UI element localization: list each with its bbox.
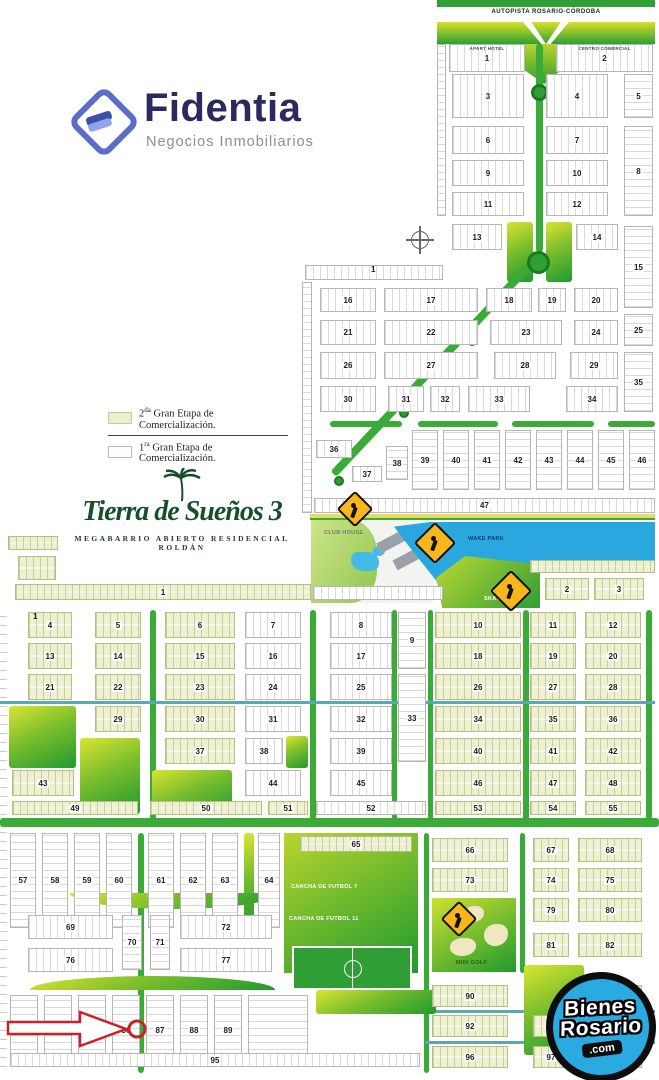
block-number: 15 <box>632 263 645 272</box>
road <box>428 610 433 820</box>
block-52: 52 <box>316 801 426 815</box>
golf-green <box>484 924 508 946</box>
block-24: 24 <box>245 674 301 700</box>
block-number: 14 <box>591 233 604 242</box>
block-number: 53 <box>472 804 485 813</box>
block-number: 10 <box>571 169 584 178</box>
block-34: 34 <box>566 386 618 412</box>
block-67: 67 <box>533 838 569 862</box>
block-number: 16 <box>342 296 355 305</box>
block-number: 26 <box>472 683 485 692</box>
block-35: 35 <box>530 706 576 732</box>
block-number: 35 <box>547 715 560 724</box>
block-number: 42 <box>607 747 620 756</box>
block-number: 59 <box>81 876 94 885</box>
block-35: 35 <box>624 352 653 412</box>
block-15: 15 <box>165 643 235 669</box>
map-label: 1 <box>371 265 376 274</box>
block-number: 39 <box>355 747 368 756</box>
block-22: 22 <box>95 674 141 700</box>
block-4: 4 <box>546 74 608 118</box>
block-number: 6 <box>196 621 204 630</box>
block-69: 69 <box>28 915 113 939</box>
masterplan-map: AUTOPISTA ROSARIO-CÓRDOBA APART HOTEL1CE… <box>0 0 659 1080</box>
block-71: 71 <box>150 915 170 970</box>
block-number: 20 <box>607 652 620 661</box>
block-12: 12 <box>546 192 608 216</box>
block-number: 42 <box>512 456 525 465</box>
block-number: 41 <box>547 747 560 756</box>
block-27: 27 <box>530 674 576 700</box>
park <box>9 706 76 768</box>
block-number: 12 <box>607 621 620 630</box>
block-number: 45 <box>355 779 368 788</box>
roundabout-dot <box>334 476 344 486</box>
block-number: 40 <box>450 456 463 465</box>
block-number: 1 <box>159 588 167 597</box>
block-37: 37 <box>352 466 382 482</box>
road <box>646 610 652 820</box>
block-number: 9 <box>484 169 492 178</box>
block-number: 33 <box>406 714 419 723</box>
block-43: 43 <box>12 770 74 796</box>
block-12: 12 <box>585 612 641 638</box>
block-number: 7 <box>269 621 277 630</box>
block-number: 37 <box>361 470 374 479</box>
road <box>424 833 429 1073</box>
block-number: 95 <box>209 1056 222 1065</box>
flyer-page: Fidentia Negocios Inmobiliarios 2da Gran… <box>0 0 659 1080</box>
sign-figure <box>422 530 448 556</box>
block-number: 18 <box>472 652 485 661</box>
block-25: 25 <box>330 674 392 700</box>
block-number: 96 <box>464 1053 477 1062</box>
map-label: CANCHA DE FUTBOL 11 <box>289 916 359 922</box>
block-number: 60 <box>113 876 126 885</box>
block-number: 66 <box>464 846 477 855</box>
football-pitch <box>292 946 412 990</box>
block-6: 6 <box>452 126 524 154</box>
sign-figure <box>344 498 366 520</box>
roundabout <box>527 251 550 274</box>
block-number: 21 <box>342 328 355 337</box>
block-number: 36 <box>328 445 341 454</box>
block-number: 46 <box>636 456 649 465</box>
block-number: 89 <box>222 1026 235 1035</box>
block-number: 23 <box>520 328 533 337</box>
block-47: 47 <box>530 770 576 796</box>
block-34: 34 <box>435 706 521 732</box>
block-2: 2 <box>545 578 589 600</box>
park <box>30 976 275 990</box>
block-number: 63 <box>219 876 232 885</box>
block-18: 18 <box>486 288 532 312</box>
block-number: 24 <box>590 328 603 337</box>
block-32: 32 <box>430 386 460 412</box>
block-46: 46 <box>629 430 655 490</box>
road <box>512 421 594 427</box>
block-49: 49 <box>12 801 138 815</box>
block-number: 61 <box>155 876 168 885</box>
block-number: 38 <box>391 459 404 468</box>
block-number: 43 <box>37 779 50 788</box>
road <box>392 610 397 820</box>
block-44: 44 <box>567 430 593 490</box>
block-number: 43 <box>543 456 556 465</box>
block-number: 80 <box>604 906 617 915</box>
block-number: 68 <box>604 846 617 855</box>
block-number: 74 <box>545 876 558 885</box>
park <box>316 990 436 1014</box>
block-3: 3 <box>594 578 644 600</box>
block-46: 46 <box>435 770 521 796</box>
block-5: 5 <box>624 74 653 118</box>
block-20: 20 <box>585 643 641 669</box>
block-number: 47 <box>547 779 560 788</box>
block-45: 45 <box>330 770 392 796</box>
block-number: 4 <box>46 621 54 630</box>
road <box>330 421 402 427</box>
block-13: 13 <box>28 643 72 669</box>
block-74: 74 <box>533 868 569 892</box>
block-28: 28 <box>494 352 556 379</box>
block-number: 62 <box>187 876 200 885</box>
block-27: 27 <box>384 352 478 379</box>
block-number: 18 <box>503 296 516 305</box>
block-number: 27 <box>425 361 438 370</box>
lot-strip <box>8 536 58 550</box>
sign-figure <box>498 578 524 604</box>
block-number: 77 <box>220 956 233 965</box>
block-90: 90 <box>432 985 508 1007</box>
block-18: 18 <box>435 643 521 669</box>
block-14: 14 <box>576 224 618 250</box>
block-number: 13 <box>471 233 484 242</box>
block-30: 30 <box>320 386 376 412</box>
block-92: 92 <box>432 1015 508 1037</box>
block-number: 5 <box>634 92 642 101</box>
block-60: 60 <box>106 833 132 928</box>
block-82: 82 <box>578 933 642 957</box>
block-66: 66 <box>432 838 508 862</box>
block-77: 77 <box>180 948 272 972</box>
block-number: 64 <box>263 876 276 885</box>
block-number: 37 <box>194 747 207 756</box>
block-40: 40 <box>435 738 521 764</box>
block-number: 30 <box>342 395 355 404</box>
highway-label: AUTOPISTA ROSARIO-CÓRDOBA <box>437 9 655 21</box>
block-2: CENTRO COMERCIAL2 <box>556 44 653 72</box>
block-43: 43 <box>536 430 562 490</box>
block-number: 3 <box>615 585 623 594</box>
block-7: 7 <box>546 126 608 154</box>
block-41: 41 <box>474 430 500 490</box>
block-1: APART HOTEL1 <box>449 44 525 72</box>
block-number: 92 <box>464 1022 477 1031</box>
block-63: 63 <box>212 833 238 928</box>
block-number: 15 <box>194 652 207 661</box>
block-45: 45 <box>598 430 624 490</box>
block-21: 21 <box>28 674 72 700</box>
block-29: 29 <box>95 706 141 732</box>
block-37: 37 <box>165 738 235 764</box>
golf-green <box>450 938 476 956</box>
block-41: 41 <box>530 738 576 764</box>
block-58: 58 <box>42 833 68 928</box>
block-number: 2 <box>600 54 608 63</box>
lot-strip <box>302 282 312 513</box>
block-16: 16 <box>320 288 376 312</box>
block-number: 2 <box>563 585 571 594</box>
map-label: WAKE PARK <box>468 536 504 542</box>
block-72: 72 <box>180 915 272 939</box>
block-number: 76 <box>64 956 77 965</box>
block-number: 58 <box>49 876 62 885</box>
block-number: 34 <box>472 715 485 724</box>
map-label: CANCHA DE FUTBOL 7 <box>291 884 358 890</box>
block-number: 22 <box>112 683 125 692</box>
block-number: 35 <box>632 378 645 387</box>
map-label: MINI GOLF <box>456 960 487 966</box>
highlight-arrow <box>0 1005 160 1057</box>
block-10: 10 <box>546 160 608 186</box>
block-number: 44 <box>574 456 587 465</box>
block-number: 82 <box>604 941 617 950</box>
block-number: 69 <box>64 923 77 932</box>
block-16: 16 <box>245 643 301 669</box>
block-number: 27 <box>547 683 560 692</box>
block-number: 28 <box>519 361 532 370</box>
block-number: 65 <box>350 840 363 849</box>
block-title: CENTRO COMERCIAL <box>557 46 652 51</box>
block-76: 76 <box>28 948 113 972</box>
block-number: 24 <box>267 683 280 692</box>
block-21: 21 <box>320 320 376 345</box>
block-62: 62 <box>180 833 206 928</box>
block-73: 73 <box>432 868 508 892</box>
block-number: 73 <box>464 876 477 885</box>
block-1: 1 <box>15 584 311 600</box>
block-80: 80 <box>578 898 642 922</box>
block-57: 57 <box>10 833 36 928</box>
block-number: 29 <box>112 715 125 724</box>
block-38: 38 <box>245 738 283 764</box>
road <box>0 818 659 827</box>
block-10: 10 <box>435 612 521 638</box>
block-31: 31 <box>388 386 424 412</box>
block-number: 45 <box>605 456 618 465</box>
block-17: 17 <box>384 288 478 312</box>
map-label: 1 <box>33 612 38 621</box>
block-number: 22 <box>425 328 438 337</box>
highway-band <box>437 22 655 44</box>
block-65: 65 <box>300 836 412 852</box>
block-61: 61 <box>148 833 174 928</box>
block-53: 53 <box>435 801 521 815</box>
block-33: 33 <box>398 674 426 762</box>
block-number: 33 <box>493 395 506 404</box>
block-number: 49 <box>69 804 82 813</box>
block-number: 13 <box>44 652 57 661</box>
block-50: 50 <box>150 801 262 815</box>
block-number: 17 <box>425 296 438 305</box>
block-11: 11 <box>530 612 576 638</box>
block-9: 9 <box>398 612 426 669</box>
block-number: 21 <box>44 683 57 692</box>
block-42: 42 <box>585 738 641 764</box>
park <box>546 222 572 282</box>
block-79: 79 <box>533 898 569 922</box>
block-number: 14 <box>112 652 125 661</box>
block-number: 57 <box>17 876 30 885</box>
block-54: 54 <box>530 801 576 815</box>
block-68: 68 <box>578 838 642 862</box>
block-26: 26 <box>435 674 521 700</box>
block-number: 88 <box>188 1026 201 1035</box>
block-17: 17 <box>330 643 392 669</box>
road <box>608 421 655 427</box>
block-36: 36 <box>585 706 641 732</box>
block-number: 55 <box>607 804 620 813</box>
block-number: 70 <box>126 938 139 947</box>
lot-strip <box>313 586 443 600</box>
block-number: 38 <box>258 747 271 756</box>
block-42: 42 <box>505 430 531 490</box>
block-number: 4 <box>573 92 581 101</box>
block-number: 32 <box>439 395 452 404</box>
block-30: 30 <box>165 706 235 732</box>
block-11: 11 <box>452 192 524 216</box>
block-55: 55 <box>585 801 641 815</box>
block-75: 75 <box>578 868 642 892</box>
block-29: 29 <box>570 352 618 379</box>
block-28: 28 <box>585 674 641 700</box>
park <box>244 833 254 928</box>
block-96: 96 <box>432 1046 508 1068</box>
block-40: 40 <box>443 430 469 490</box>
block-19: 19 <box>538 288 566 312</box>
block-number: 10 <box>472 621 485 630</box>
block-number: 79 <box>545 906 558 915</box>
street-line <box>0 701 655 704</box>
lot-strip <box>530 560 655 573</box>
block-number: 30 <box>194 715 207 724</box>
block-number: 11 <box>482 200 494 209</box>
block-number: 23 <box>194 683 207 692</box>
block-8: 8 <box>330 612 392 638</box>
block-59: 59 <box>74 833 100 928</box>
block-number: 47 <box>478 501 491 510</box>
block-number: 81 <box>545 941 558 950</box>
block-8: 8 <box>624 126 653 216</box>
block-number: 1 <box>483 54 491 63</box>
block-number: 90 <box>464 992 477 1001</box>
block-number: 72 <box>220 923 233 932</box>
block-number: 48 <box>607 779 620 788</box>
block-70: 70 <box>122 915 142 970</box>
map-label: CLUB HOUSE <box>324 530 363 536</box>
block-39: 39 <box>330 738 392 764</box>
block-5: 5 <box>95 612 141 638</box>
block-3: 3 <box>452 74 524 118</box>
block-number: 44 <box>267 779 280 788</box>
block-26: 26 <box>320 352 376 379</box>
block-number: 29 <box>588 361 601 370</box>
block-number: 51 <box>282 804 295 813</box>
block-number: 75 <box>604 876 617 885</box>
block-number: 16 <box>267 652 280 661</box>
block-number: 25 <box>355 683 368 692</box>
block-24: 24 <box>574 320 618 345</box>
block-number: 12 <box>571 200 584 209</box>
block-6: 6 <box>165 612 235 638</box>
block-number: 36 <box>607 715 620 724</box>
block-number: 67 <box>545 846 558 855</box>
block-number: 25 <box>632 326 645 335</box>
block-31: 31 <box>245 706 301 732</box>
block-number: 7 <box>573 136 581 145</box>
block-9: 9 <box>452 160 524 186</box>
block-51: 51 <box>268 801 308 815</box>
block-number: 54 <box>547 804 560 813</box>
highway-bar <box>437 0 655 7</box>
block-number: 28 <box>607 683 620 692</box>
block-81: 81 <box>533 933 569 957</box>
block-32: 32 <box>330 706 392 732</box>
block-38: 38 <box>386 446 408 480</box>
block-64: 64 <box>258 833 280 928</box>
compass-icon <box>406 226 434 254</box>
block-number: 31 <box>267 715 280 724</box>
block-number: 41 <box>481 456 494 465</box>
block-number: 8 <box>634 167 642 176</box>
block-44: 44 <box>245 770 301 796</box>
block-7: 7 <box>245 612 301 638</box>
block-22: 22 <box>384 320 478 345</box>
road <box>523 610 529 820</box>
block-20: 20 <box>574 288 618 312</box>
road <box>418 421 498 427</box>
block-15: 15 <box>624 226 653 308</box>
block-number: 19 <box>547 652 560 661</box>
block-number: 26 <box>342 361 355 370</box>
block-number: 39 <box>419 456 432 465</box>
block-title: APART HOTEL <box>450 46 524 51</box>
highlight-circle <box>129 1021 145 1037</box>
block-number: 11 <box>547 621 559 630</box>
block-36: 36 <box>316 440 352 458</box>
edge-ruler <box>0 612 7 1067</box>
road <box>536 44 543 252</box>
block-14: 14 <box>95 643 141 669</box>
block-39: 39 <box>412 430 438 490</box>
road <box>520 833 525 973</box>
lot-strip <box>18 556 56 580</box>
block-number: 40 <box>472 747 485 756</box>
road <box>310 610 316 820</box>
block-number: 6 <box>484 136 492 145</box>
block-number: 32 <box>355 715 368 724</box>
block-number: 34 <box>586 395 599 404</box>
sign-figure <box>448 908 470 930</box>
block-number: 8 <box>357 621 365 630</box>
block-25: 25 <box>624 314 653 346</box>
block-number: 31 <box>400 395 413 404</box>
block-23: 23 <box>490 320 562 345</box>
block-number: 50 <box>200 804 213 813</box>
block-33: 33 <box>468 386 530 412</box>
block-number: 5 <box>114 621 122 630</box>
